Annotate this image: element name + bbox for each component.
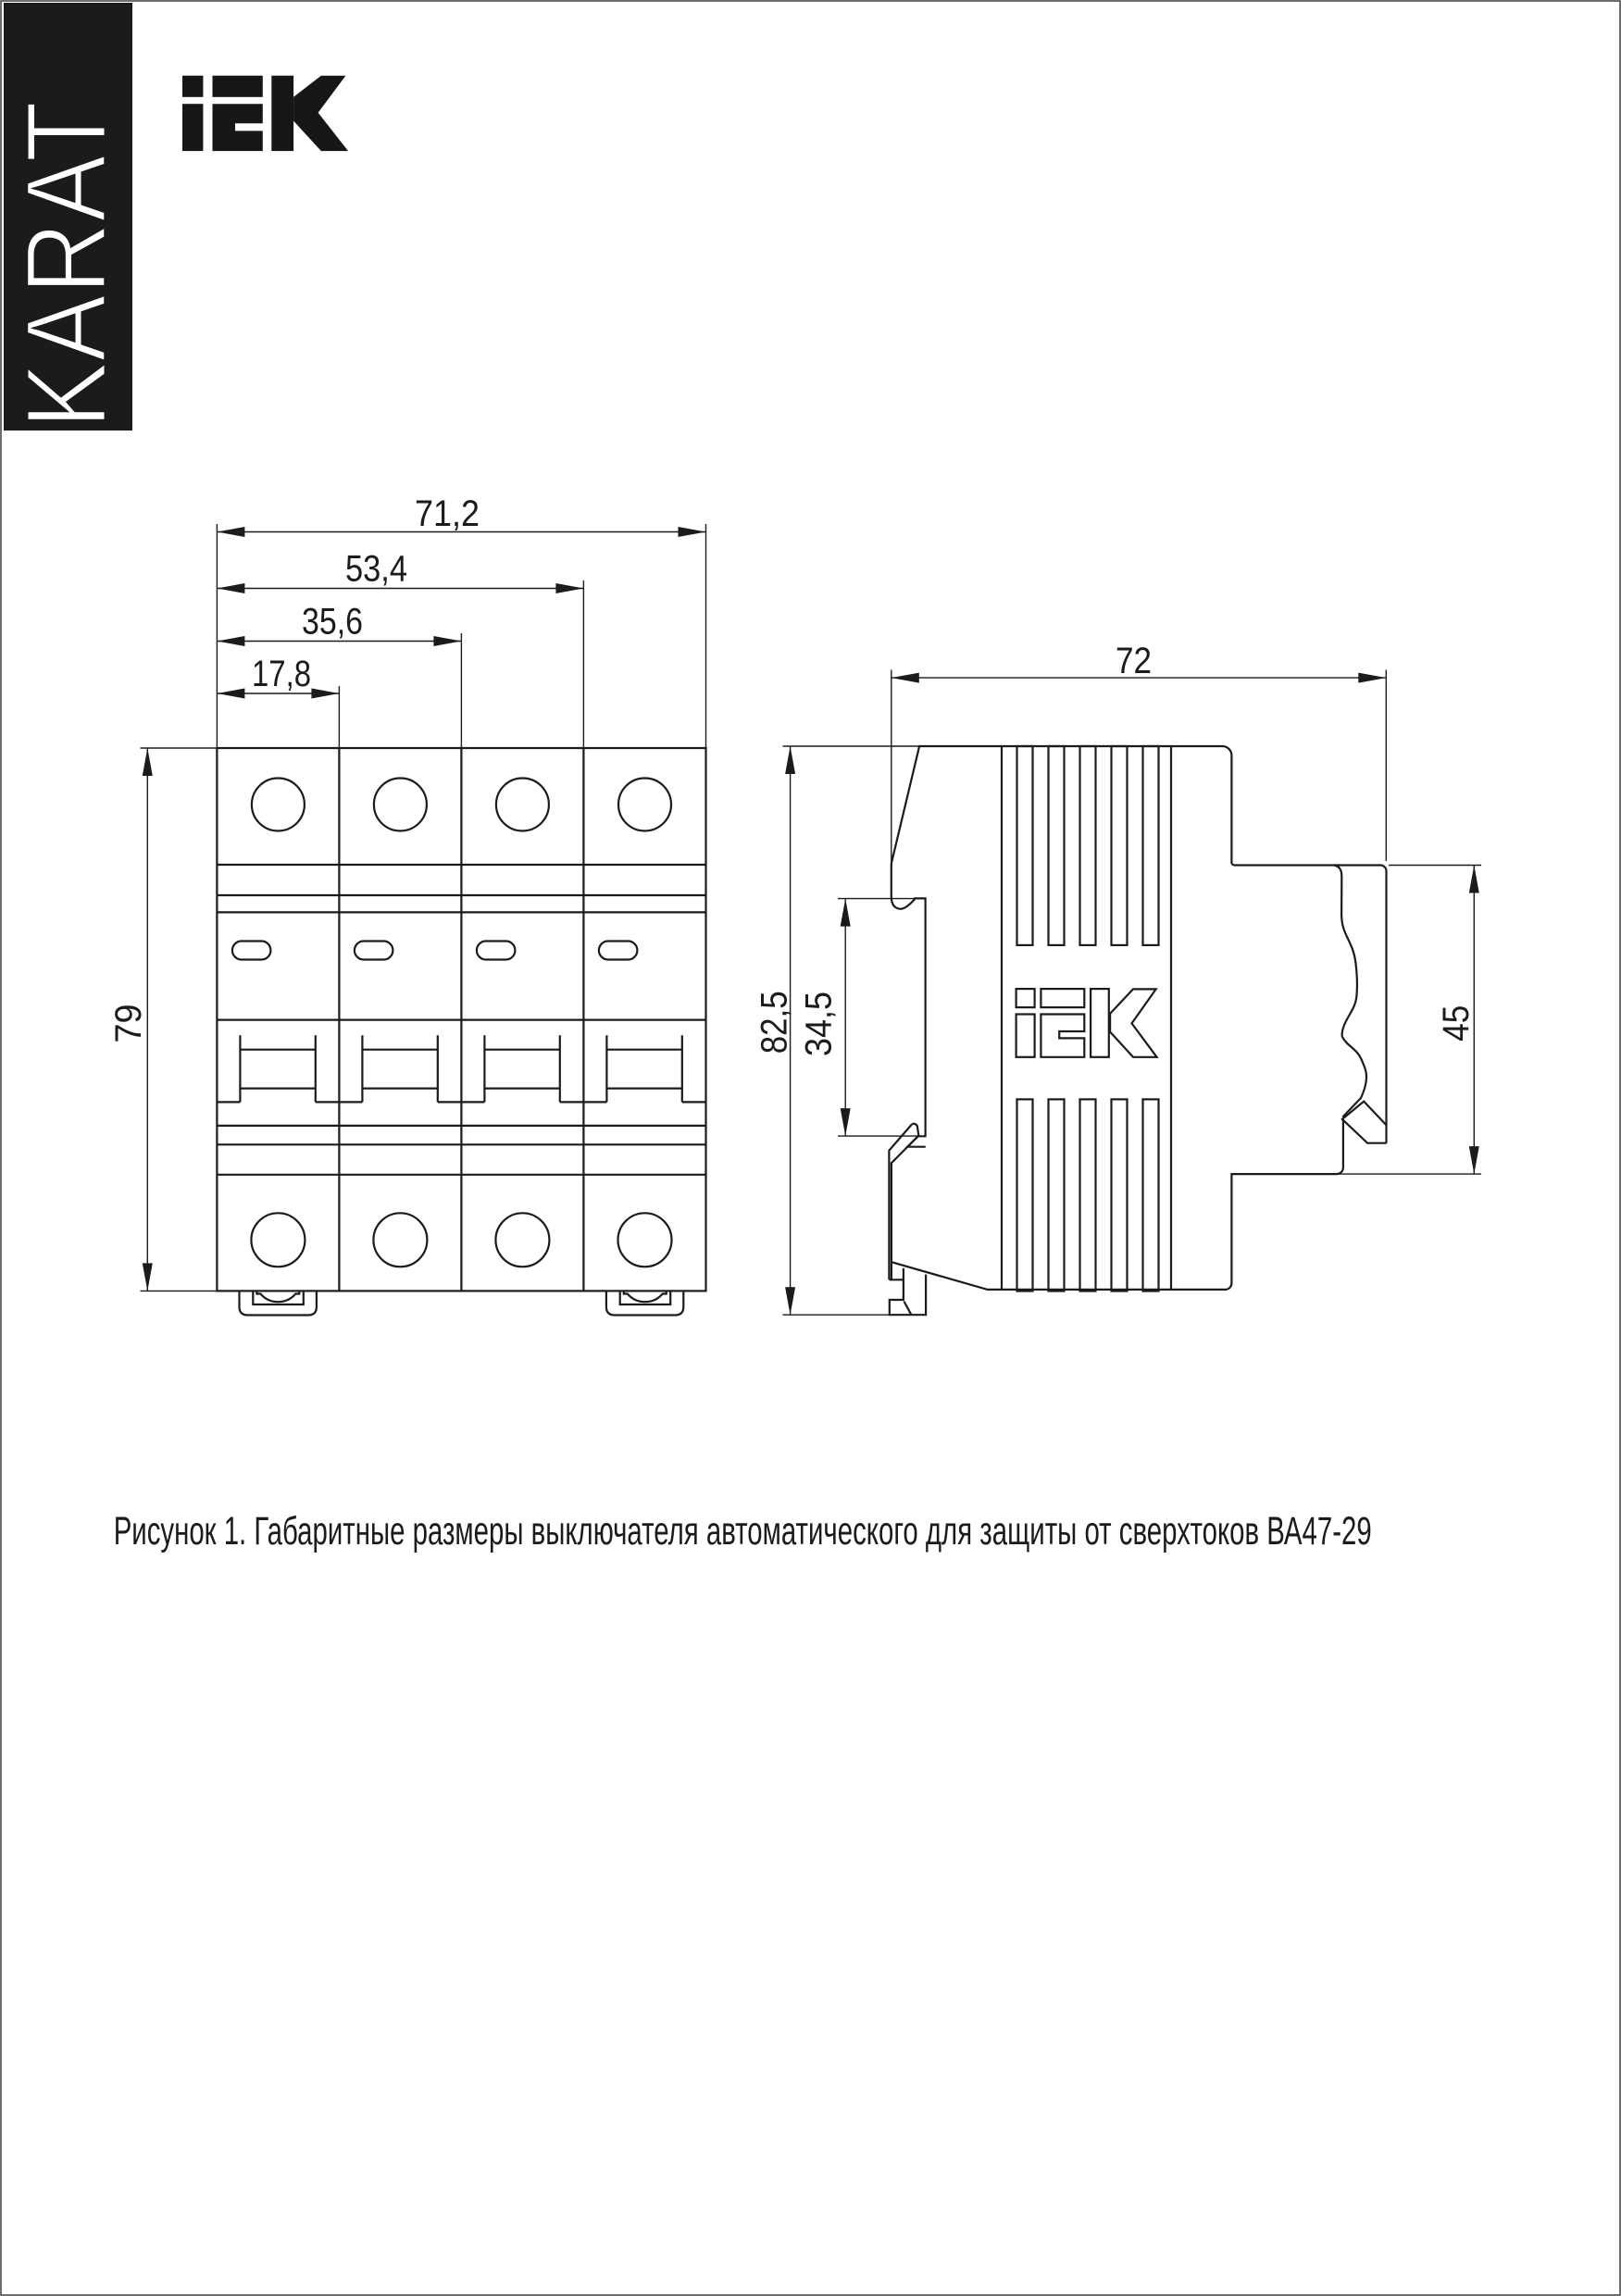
svg-text:71,2: 71,2 <box>415 493 480 534</box>
svg-text:35,6: 35,6 <box>302 602 363 643</box>
svg-text:34,5: 34,5 <box>799 992 840 1056</box>
svg-text:Рисунок 1. Габаритные размеры: Рисунок 1. Габаритные размеры выключател… <box>114 1510 1372 1554</box>
svg-text:45: 45 <box>1436 1005 1477 1042</box>
svg-text:82,5: 82,5 <box>754 991 795 1054</box>
svg-text:72: 72 <box>1116 641 1152 681</box>
svg-text:53,4: 53,4 <box>345 549 407 590</box>
svg-text:KARAT: KARAT <box>4 101 131 429</box>
svg-text:79: 79 <box>108 1004 149 1043</box>
svg-text:17,8: 17,8 <box>252 654 311 694</box>
